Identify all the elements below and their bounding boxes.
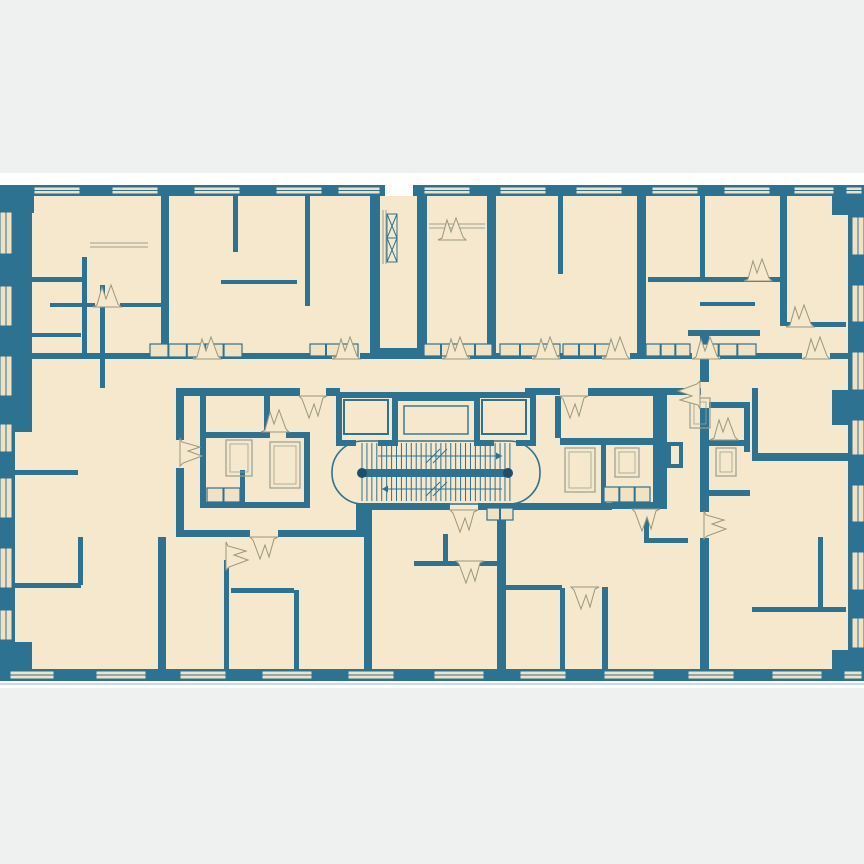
counter-unit	[646, 344, 690, 356]
interior-wall	[700, 302, 755, 306]
interior-wall	[709, 490, 750, 496]
interior-wall	[555, 396, 561, 438]
machine-room-wall	[398, 392, 474, 401]
interior-wall	[560, 438, 667, 445]
interior-wall	[644, 538, 688, 543]
interior-wall	[417, 196, 427, 354]
interior-wall	[364, 510, 372, 669]
floor-plan-drawing	[0, 0, 864, 864]
stair-handrail	[358, 469, 512, 477]
elevator-shaft-wall	[336, 392, 342, 446]
counter-unit	[150, 344, 242, 357]
interior-wall	[15, 470, 78, 475]
outer-wall	[832, 390, 848, 425]
interior-wall	[700, 196, 705, 282]
floor-base	[0, 196, 864, 669]
elevator-shaft-wall	[474, 392, 480, 446]
elevator-shaft-wall	[336, 392, 398, 398]
interior-wall	[560, 588, 565, 669]
interior-wall	[443, 534, 448, 563]
outer-wall	[0, 185, 34, 213]
interior-wall	[667, 442, 671, 468]
interior-wall	[709, 440, 750, 446]
elevator-shaft-wall	[530, 392, 536, 446]
interior-wall	[830, 353, 848, 359]
interior-wall	[161, 196, 169, 357]
interior-wall	[709, 402, 750, 408]
floor-plan-page	[0, 0, 864, 864]
interior-wall	[637, 196, 646, 356]
bottom-gray-panel	[0, 688, 864, 864]
interior-wall	[370, 196, 380, 354]
interior-wall	[206, 432, 264, 438]
interior-wall	[558, 196, 563, 274]
interior-wall	[200, 388, 270, 394]
interior-wall	[15, 333, 81, 337]
interior-wall	[176, 388, 184, 440]
interior-wall	[818, 537, 823, 611]
stair-handrail-cap	[357, 468, 367, 478]
interior-wall	[752, 453, 848, 461]
interior-wall	[200, 502, 310, 508]
interior-wall	[752, 607, 846, 612]
interior-wall	[221, 280, 297, 284]
interior-wall	[176, 530, 250, 537]
interior-wall	[200, 388, 206, 508]
interior-wall	[497, 510, 506, 669]
interior-wall	[752, 388, 758, 453]
counter-unit	[563, 344, 611, 356]
interior-wall	[231, 588, 294, 593]
interior-wall	[688, 330, 760, 336]
interior-wall	[176, 468, 184, 537]
interior-wall	[679, 442, 683, 468]
interior-wall	[120, 303, 165, 307]
interior-wall	[700, 538, 709, 669]
outer-wall	[15, 185, 32, 432]
interior-wall	[15, 583, 81, 588]
interior-wall	[506, 585, 562, 590]
interior-wall	[305, 196, 310, 306]
interior-wall	[233, 196, 238, 252]
interior-wall	[15, 277, 85, 282]
interior-wall	[304, 432, 310, 508]
interior-wall	[294, 590, 299, 669]
interior-wall	[588, 388, 653, 396]
interior-wall	[780, 196, 787, 326]
interior-wall	[653, 390, 667, 507]
interior-wall	[240, 470, 245, 502]
interior-wall	[602, 587, 608, 669]
interior-wall	[487, 196, 496, 356]
interior-wall	[158, 537, 166, 669]
interior-wall	[278, 530, 360, 537]
elevator-shaft-wall	[392, 392, 398, 446]
stair-handrail-cap	[503, 468, 513, 478]
interior-wall	[224, 560, 229, 669]
interior-wall	[78, 537, 83, 585]
counter-unit	[604, 487, 650, 502]
interior-wall	[50, 303, 95, 307]
elevator-shaft-wall	[474, 392, 536, 398]
top-gray-panel	[0, 0, 864, 173]
interior-wall	[414, 561, 497, 566]
